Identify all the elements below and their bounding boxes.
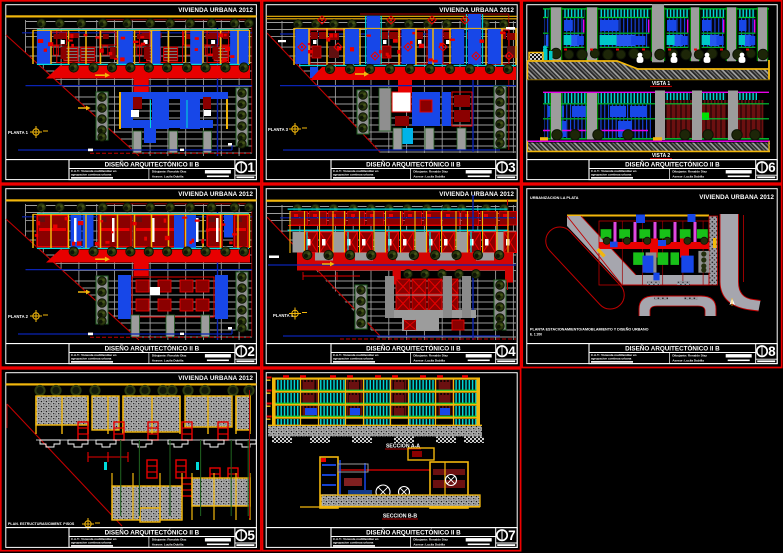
svg-text:DISEÑO ARQUITECTÓNICO II B: DISEÑO ARQUITECTÓNICO II B bbox=[366, 528, 461, 537]
svg-text:Asesor: Lucila Dubilla: Asesor: Lucila Dubilla bbox=[152, 175, 184, 179]
svg-text:agrupacion continua urbana: agrupacion continua urbana bbox=[71, 541, 112, 545]
svg-text:Dibujante: Ronaldo Diaz: Dibujante: Ronaldo Diaz bbox=[413, 537, 448, 541]
svg-text:VIVIENDA URBANA 2012: VIVIENDA URBANA 2012 bbox=[439, 7, 514, 14]
svg-text:URBANIZACION LA PLATA: URBANIZACION LA PLATA bbox=[530, 196, 579, 200]
svg-text:DISEÑO ARQUITECTÓNICO II B: DISEÑO ARQUITECTÓNICO II B bbox=[625, 160, 720, 169]
svg-text:PLANTA 2: PLANTA 2 bbox=[8, 314, 29, 319]
svg-text:Dibujante: Ronaldo Diaz: Dibujante: Ronaldo Diaz bbox=[152, 537, 187, 541]
svg-text:PLANTA ESTACIONAMIENTO/AMOBLAM: PLANTA ESTACIONAMIENTO/AMOBLAMIENTO Y DI… bbox=[530, 327, 649, 332]
svg-text:PLANTA 1: PLANTA 1 bbox=[8, 130, 29, 135]
svg-text:Dibujante: Ronaldo Diaz: Dibujante: Ronaldo Diaz bbox=[672, 169, 707, 173]
svg-text:Asesor: Lucila Dubilla: Asesor: Lucila Dubilla bbox=[672, 175, 704, 179]
svg-text:Dibujante: Ronaldo Diaz: Dibujante: Ronaldo Diaz bbox=[672, 353, 707, 357]
svg-text:E. 1:200: E. 1:200 bbox=[530, 333, 542, 337]
svg-text:agrupacion continua urbana: agrupacion continua urbana bbox=[333, 541, 374, 545]
svg-text:DISEÑO ARQUITECTÓNICO II B: DISEÑO ARQUITECTÓNICO II B bbox=[105, 160, 200, 169]
svg-text:DISEÑO ARQUITECTÓNICO II B: DISEÑO ARQUITECTÓNICO II B bbox=[105, 528, 200, 537]
svg-text:Dibujante: Ronaldo Diaz: Dibujante: Ronaldo Diaz bbox=[413, 169, 448, 173]
svg-text:PLANTA 3: PLANTA 3 bbox=[268, 127, 289, 132]
svg-text:Asesor: Lucila Dubilla: Asesor: Lucila Dubilla bbox=[152, 543, 184, 547]
svg-text:VIVIENDA URBANA 2012: VIVIENDA URBANA 2012 bbox=[178, 191, 253, 198]
svg-text:3: 3 bbox=[508, 160, 516, 175]
svg-text:6: 6 bbox=[768, 160, 776, 175]
svg-text:VIVIENDA URBANA 2012: VIVIENDA URBANA 2012 bbox=[699, 194, 774, 201]
svg-text:Asesor: Lucila Dubilla: Asesor: Lucila Dubilla bbox=[413, 175, 445, 179]
svg-text:8: 8 bbox=[768, 344, 776, 359]
svg-text:VIVIENDA URBANA 2012: VIVIENDA URBANA 2012 bbox=[439, 191, 514, 198]
svg-text:7: 7 bbox=[508, 528, 516, 543]
svg-text:2: 2 bbox=[247, 344, 255, 359]
svg-text:agrupacion continua urbana: agrupacion continua urbana bbox=[333, 357, 374, 361]
svg-text:PLAN. ESTRUCTURAS/CIMENT. PISO: PLAN. ESTRUCTURAS/CIMENT. PISOS bbox=[8, 522, 75, 526]
svg-text:Asesor: Lucila Dubilla: Asesor: Lucila Dubilla bbox=[413, 359, 445, 363]
svg-text:1: 1 bbox=[247, 160, 255, 175]
svg-text:DISEÑO ARQUITECTÓNICO II B: DISEÑO ARQUITECTÓNICO II B bbox=[105, 344, 200, 353]
svg-text:agrupacion continua urbana: agrupacion continua urbana bbox=[333, 173, 374, 177]
svg-text:DISEÑO ARQUITECTÓNICO II B: DISEÑO ARQUITECTÓNICO II B bbox=[366, 344, 461, 353]
svg-text:DISEÑO ARQUITECTÓNICO II B: DISEÑO ARQUITECTÓNICO II B bbox=[366, 160, 461, 169]
svg-text:Asesor: Lucila Dubilla: Asesor: Lucila Dubilla bbox=[413, 543, 445, 547]
svg-text:agrupacion continua urbana: agrupacion continua urbana bbox=[71, 173, 112, 177]
svg-text:Dibujante: Ronaldo Diaz: Dibujante: Ronaldo Diaz bbox=[413, 353, 448, 357]
svg-text:VIVIENDA URBANA 2012: VIVIENDA URBANA 2012 bbox=[178, 7, 253, 14]
svg-text:Asesor: Lucila Dubilla: Asesor: Lucila Dubilla bbox=[152, 359, 184, 363]
svg-text:Dibujante: Ronaldo Diaz: Dibujante: Ronaldo Diaz bbox=[152, 169, 187, 173]
svg-text:DISEÑO ARQUITECTÓNICO II B: DISEÑO ARQUITECTÓNICO II B bbox=[625, 344, 720, 353]
svg-text:4: 4 bbox=[508, 344, 516, 359]
svg-text:agrupacion continua urbana: agrupacion continua urbana bbox=[591, 173, 632, 177]
svg-text:5: 5 bbox=[247, 528, 255, 543]
svg-text:agrupacion continua urbana: agrupacion continua urbana bbox=[71, 357, 112, 361]
svg-text:Asesor: Lucila Dubilla: Asesor: Lucila Dubilla bbox=[672, 359, 704, 363]
svg-text:agrupacion continua urbana: agrupacion continua urbana bbox=[591, 357, 632, 361]
svg-text:VIVIENDA URBANA 2012: VIVIENDA URBANA 2012 bbox=[178, 375, 253, 382]
svg-text:Dibujante: Ronaldo Diaz: Dibujante: Ronaldo Diaz bbox=[152, 353, 187, 357]
